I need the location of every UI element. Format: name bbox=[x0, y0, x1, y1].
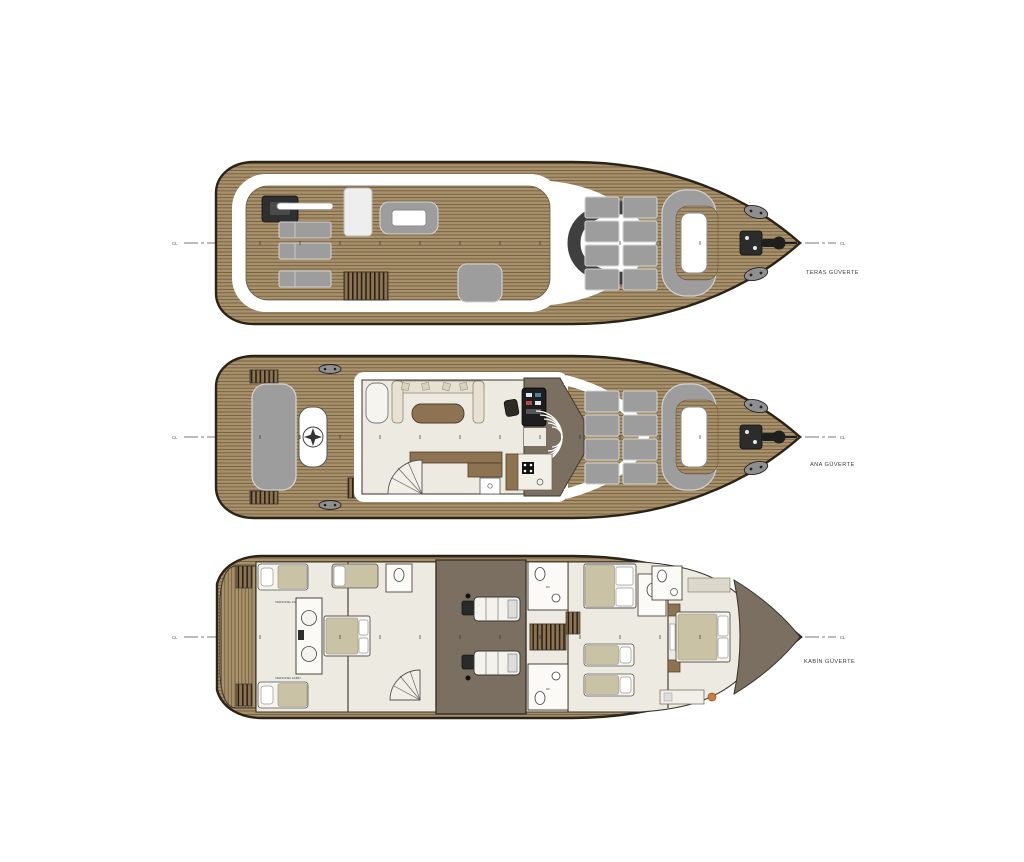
yacht-plan-sheet: CL CL TERAS GÜVERTE bbox=[0, 0, 1024, 862]
wardrobe bbox=[688, 578, 730, 592]
guest-bathroom-bottom: WC bbox=[528, 664, 568, 710]
sink-icon bbox=[671, 589, 678, 596]
armchair bbox=[366, 383, 388, 423]
helm-console bbox=[522, 388, 546, 426]
toilet-icon bbox=[298, 630, 304, 640]
deck-name-kabin: KABİN GÜVERTE bbox=[804, 658, 855, 665]
galley bbox=[506, 454, 552, 490]
shower-icon bbox=[302, 611, 317, 626]
centerline-label-right: CL bbox=[840, 435, 846, 440]
wc-label-top: WC bbox=[546, 585, 550, 589]
sink-icon bbox=[552, 594, 560, 602]
deck-plans-drawing: CL CL TERAS GÜVERTE bbox=[0, 0, 1024, 862]
toilet-icon bbox=[535, 568, 545, 581]
deck-name-teras: TERAS GÜVERTE bbox=[806, 269, 859, 276]
flybridge-stairs bbox=[344, 272, 388, 300]
guest-bathroom-top: WC bbox=[528, 562, 568, 610]
engine-room bbox=[436, 560, 526, 714]
toilet-icon bbox=[535, 692, 545, 705]
deck-kabin: PERSONEL KABİN PERSONEL KABİN bbox=[172, 556, 855, 718]
wc-label-bottom: WC bbox=[546, 687, 550, 691]
toilet-icon bbox=[658, 570, 667, 582]
companionway-stairs bbox=[530, 624, 566, 650]
deck-hatch bbox=[344, 188, 372, 236]
centerline-label-left: CL bbox=[172, 635, 178, 640]
wc-top-mid bbox=[386, 564, 412, 592]
deck-ana: CL CL ANA GÜVERTE bbox=[172, 356, 855, 518]
cleat-icon bbox=[319, 501, 341, 510]
compass-rose-icon bbox=[303, 427, 323, 447]
stern-stairs bbox=[250, 491, 278, 504]
centerline-label-right: CL bbox=[840, 635, 846, 640]
shower-icon bbox=[302, 647, 317, 662]
toilet-icon bbox=[394, 569, 404, 582]
crew-bed bbox=[258, 564, 308, 590]
room-label-crew-bottom: PERSONEL KABİN bbox=[275, 675, 300, 680]
chain-locker bbox=[734, 580, 800, 694]
stove-icon bbox=[522, 462, 534, 474]
wardrobe bbox=[566, 612, 580, 634]
coffee-table bbox=[412, 404, 464, 423]
wheelhouse-passage bbox=[524, 428, 546, 446]
tender-hatch bbox=[252, 384, 296, 490]
deck-teras: CL CL TERAS GÜVERTE bbox=[172, 162, 859, 324]
deck-name-ana: ANA GÜVERTE bbox=[810, 461, 855, 468]
double-bed bbox=[324, 616, 370, 656]
flybridge-dinette bbox=[380, 202, 438, 234]
decor-icon bbox=[708, 693, 716, 701]
wardrobe bbox=[236, 566, 252, 588]
centerline-label-right: CL bbox=[840, 241, 846, 246]
foot-bench bbox=[670, 624, 675, 650]
crew-bed bbox=[258, 682, 308, 708]
helm-seat bbox=[504, 399, 520, 417]
sun-pad bbox=[458, 264, 502, 302]
wardrobe bbox=[236, 684, 252, 706]
bar-counter bbox=[277, 203, 333, 210]
sink-icon bbox=[552, 672, 560, 680]
galley-unit bbox=[480, 478, 500, 494]
cleat-icon bbox=[319, 365, 341, 374]
stern-stairs bbox=[250, 370, 278, 383]
flybridge-loungers bbox=[279, 222, 331, 287]
aft-deck-table bbox=[299, 407, 327, 467]
centerline-label-left: CL bbox=[172, 241, 178, 246]
master-ensuite bbox=[652, 566, 682, 600]
centerline-label-left: CL bbox=[172, 435, 178, 440]
